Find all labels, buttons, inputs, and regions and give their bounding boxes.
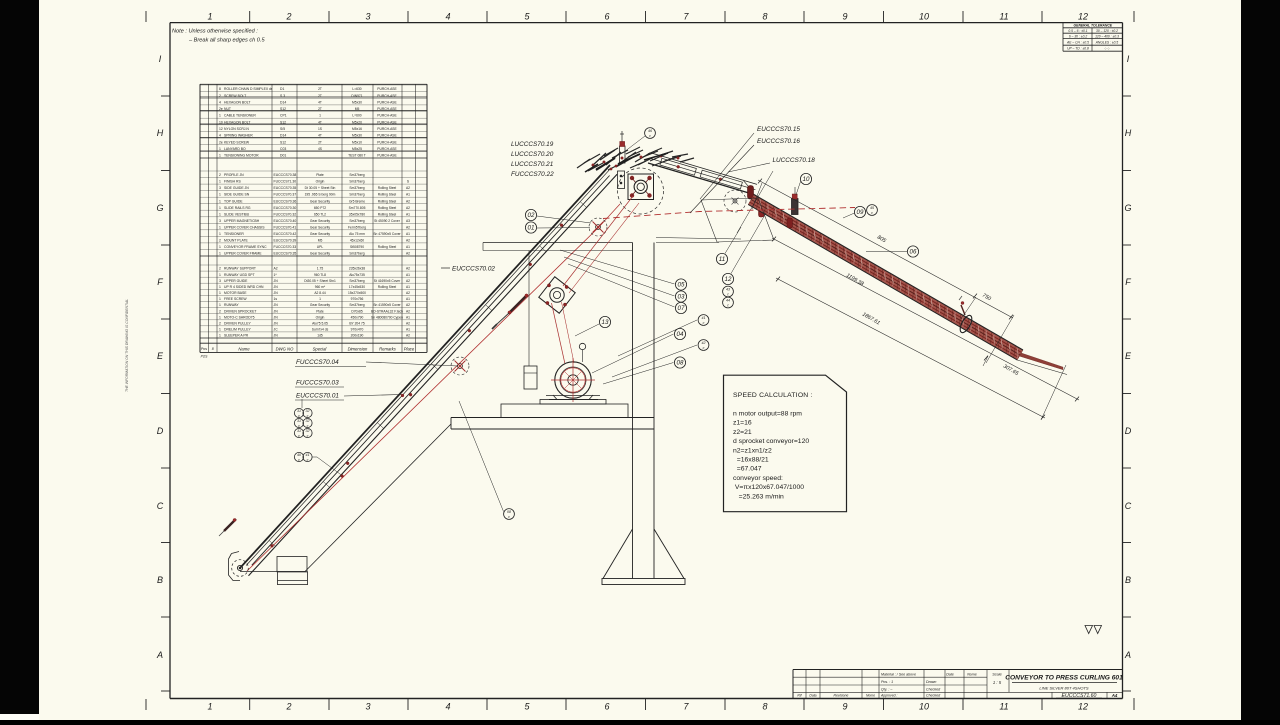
svg-text:PURCH-ASE: PURCH-ASE (377, 114, 397, 118)
svg-text:LINE SILVER 80T 4SHOTS: LINE SILVER 80T 4SHOTS (1039, 686, 1088, 691)
svg-text:Remarks: Remarks (379, 347, 397, 352)
svg-text:UPPER COVER CHASSIS: UPPER COVER CHASSIS (224, 225, 265, 229)
svg-text:z2=21: z2=21 (733, 429, 752, 436)
svg-text:DRIVEN SPROCKET: DRIVEN SPROCKET (224, 309, 256, 313)
svg-text:06: 06 (910, 249, 917, 256)
svg-text:Alu 75 mm: Alu 75 mm (349, 232, 365, 236)
svg-text:A2: A2 (406, 334, 410, 338)
svg-text:12: 12 (219, 127, 223, 131)
svg-text:41: 41 (702, 316, 706, 320)
svg-text:St 45090 2 Cover: St 45090 2 Cover (374, 219, 401, 223)
svg-text:n motor output=88 rpm: n motor output=88 rpm (733, 411, 802, 418)
svg-text:CONVEYOR TO PRESS CURLING 601: CONVEYOR TO PRESS CURLING 601 (1005, 675, 1123, 682)
svg-text:1: 1 (219, 328, 221, 332)
svg-text:A1: A1 (406, 315, 410, 319)
svg-text:Origin: Origin (316, 180, 325, 184)
svg-text:02: 02 (528, 212, 535, 219)
svg-text:3: 3 (219, 186, 221, 190)
svg-text:Sm37berg: Sm37berg (349, 303, 364, 307)
svg-text:3: 3 (219, 219, 221, 223)
svg-text:D70x85: D70x85 (351, 309, 363, 313)
svg-text:A4: A4 (1111, 693, 1118, 698)
svg-text:UP – TO : ±0.8: UP – TO : ±0.8 (1067, 47, 1089, 51)
svg-text:MOTO-C SAROD75: MOTO-C SAROD75 (224, 315, 255, 319)
svg-text:960 m*: 960 m* (315, 285, 326, 289)
svg-text:– Break all sharp edges ch 0.5: – Break all sharp edges ch 0.5 (188, 38, 265, 44)
svg-text:Plate: Plate (316, 309, 324, 313)
svg-text:c: c (298, 458, 300, 462)
svg-text:Name: Name (238, 347, 250, 352)
svg-text:Plate: Plate (316, 173, 324, 177)
svg-text:A2: A2 (406, 186, 410, 190)
svg-text:4: 4 (219, 134, 221, 138)
svg-text:1: 1 (219, 245, 221, 249)
svg-text:41: 41 (306, 453, 310, 457)
svg-text:JN: JN (274, 279, 279, 283)
svg-text:1: 1 (219, 315, 221, 319)
svg-text:A2: A2 (406, 267, 410, 271)
svg-text:45: 45 (870, 206, 874, 210)
svg-text:D01: D01 (280, 154, 286, 158)
svg-text:SLIDE VESTIBU: SLIDE VESTIBU (224, 212, 250, 216)
svg-text:D14: D14 (280, 100, 286, 104)
svg-text:ROLLER CHAIN D SIMPLEX dr: ROLLER CHAIN D SIMPLEX dr (224, 87, 273, 91)
svg-text:4: 4 (445, 12, 450, 22)
svg-text:Qty. : –: Qty. : – (881, 687, 893, 691)
svg-text:8: 8 (212, 347, 214, 351)
svg-text:AE – CH : ±0.5: AE – CH : ±0.5 (1066, 40, 1089, 44)
svg-text:2: 2 (285, 702, 291, 712)
svg-text:CONVEYOR FRAME SYNC: CONVEYOR FRAME SYNC (224, 245, 267, 249)
svg-text:A2: A2 (406, 225, 410, 229)
svg-text:1: 1 (219, 297, 221, 301)
svg-text:Approved :: Approved : (880, 694, 897, 698)
svg-text:09: 09 (857, 209, 864, 216)
svg-text:08: 08 (507, 510, 511, 514)
svg-text:MOTOR BASE: MOTOR BASE (224, 291, 247, 295)
svg-text:A2: A2 (406, 303, 410, 307)
svg-text:PURCH-ASE: PURCH-ASE (377, 140, 397, 144)
svg-text:JN: JN (274, 309, 279, 313)
svg-text:35x05x780: 35x05x780 (349, 212, 365, 216)
svg-text:CP1: CP1 (280, 114, 287, 118)
svg-text:H: H (1125, 128, 1132, 138)
svg-text:1: 1 (219, 147, 221, 151)
svg-text:1d5: 1d5 (317, 334, 323, 338)
svg-text:1: 1 (219, 114, 221, 118)
svg-text:Rolling Steel: Rolling Steel (378, 245, 397, 249)
svg-text:n2=z1xn1/z2: n2=z1xn1/z2 (733, 447, 772, 454)
svg-text:Gear Security: Gear Security (310, 199, 331, 203)
svg-text:LUCCCS70.19: LUCCCS70.19 (511, 141, 554, 148)
svg-text:A2: A2 (406, 322, 410, 326)
svg-text:c: c (307, 434, 309, 438)
svg-text:Date: Date (946, 672, 954, 676)
svg-text:E: E (1125, 351, 1132, 361)
svg-text:10: 10 (919, 12, 929, 22)
svg-text:Drawn: Drawn (926, 680, 936, 684)
svg-text:LUCCCS70.21: LUCCCS70.21 (511, 161, 554, 168)
svg-text:LANYARD BO: LANYARD BO (224, 147, 246, 151)
svg-text:M5x30: M5x30 (352, 100, 362, 104)
svg-text:DRIVEN PULLEY: DRIVEN PULLEY (224, 322, 251, 326)
svg-text:=16x88/21: =16x88/21 (733, 457, 769, 464)
svg-text:195 .965 S berg 90m: 195 .965 S berg 90m (305, 193, 336, 197)
svg-text:A2: A2 (406, 252, 410, 256)
svg-text:Nome: Nome (967, 672, 977, 676)
svg-text:A2 8.44: A2 8.44 (314, 291, 326, 295)
svg-text:c: c (307, 414, 309, 418)
svg-text:Sm770.805: Sm770.805 (349, 206, 366, 210)
svg-text:GENERAL TOLERANCE: GENERAL TOLERANCE (1074, 24, 1113, 28)
svg-text:2T: 2T (318, 87, 322, 91)
svg-text:UPPER MAGNETICBH: UPPER MAGNETICBH (224, 219, 260, 223)
svg-text:BY 204 75: BY 204 75 (349, 322, 365, 326)
svg-text:1: 1 (219, 334, 221, 338)
svg-text:FINISH RS: FINISH RS (224, 180, 242, 184)
svg-text:SPRING WASHER: SPRING WASHER (224, 134, 253, 138)
svg-text:11: 11 (719, 256, 725, 263)
svg-text:M5x16: M5x16 (352, 127, 362, 131)
svg-text:DWG NO: DWG NO (276, 347, 294, 352)
svg-text:JN: JN (274, 315, 279, 319)
svg-text:Origin: Origin (316, 315, 325, 319)
svg-text:PROFILE JN: PROFILE JN (224, 173, 244, 177)
svg-text:UPPER GUIDE: UPPER GUIDE (224, 279, 248, 283)
svg-text:c: c (727, 292, 729, 296)
svg-text:E: E (157, 351, 164, 361)
svg-text:40: 40 (297, 453, 301, 457)
svg-text:ANGLES : ±0.5: ANGLES : ±0.5 (1095, 40, 1119, 44)
svg-text:31: 31 (297, 429, 301, 433)
svg-text:15x270x500: 15x270x500 (348, 291, 366, 295)
svg-text:8: 8 (219, 87, 221, 91)
svg-text:1 : 5: 1 : 5 (993, 680, 1002, 685)
svg-text:6: 6 (604, 702, 609, 712)
svg-text:c: c (298, 414, 300, 418)
svg-text:4: 4 (219, 100, 221, 104)
svg-text:Gear Security: Gear Security (310, 219, 331, 223)
svg-text:z1=16: z1=16 (733, 420, 752, 427)
svg-text:32: 32 (306, 429, 310, 433)
svg-text:C03: C03 (280, 147, 286, 151)
svg-text:Gear Security: Gear Security (310, 303, 331, 307)
svg-text:Data: Data (809, 694, 816, 698)
svg-text:Dimension: Dimension (348, 347, 368, 352)
svg-text:Pos. : 1: Pos. : 1 (881, 680, 893, 684)
svg-text:c: c (727, 303, 729, 307)
svg-text:970x470: 970x470 (351, 328, 364, 332)
svg-text:11: 11 (999, 702, 1008, 712)
svg-text:8: 8 (762, 12, 767, 22)
svg-text:6: 6 (604, 12, 609, 22)
svg-text:2: 2 (219, 239, 221, 243)
svg-text:FUCCCS70.22: FUCCCS70.22 (511, 171, 554, 178)
svg-text:31: 31 (297, 419, 301, 423)
svg-text:FUCCCS70.32: FUCCCS70.32 (274, 212, 297, 216)
svg-text:LUCCCS70.18: LUCCCS70.18 (773, 157, 816, 164)
svg-text:RUNWAY UGD SPT: RUNWAY UGD SPT (224, 273, 255, 277)
svg-text:M5: M5 (318, 239, 323, 243)
svg-text:S12: S12 (280, 140, 286, 144)
svg-text:TEST 080 T: TEST 080 T (348, 154, 366, 158)
svg-text:31: 31 (297, 409, 301, 413)
svg-text:Revisione: Revisione (834, 694, 849, 698)
svg-text:Nome: Nome (866, 694, 875, 698)
svg-text:07: 07 (678, 305, 685, 312)
svg-text:L=630: L=630 (352, 87, 361, 91)
svg-text:HEXAGON BOLT: HEXAGON BOLT (224, 100, 251, 104)
svg-text:1: 1 (207, 12, 212, 22)
svg-text:1s: 1s (274, 297, 278, 301)
svg-text:A1: A1 (406, 285, 410, 289)
svg-text:10: 10 (803, 176, 810, 183)
svg-text:D: D (157, 426, 164, 436)
svg-text:Rolling Steel: Rolling Steel (378, 193, 397, 197)
svg-text:Sm37berg: Sm37berg (349, 219, 364, 223)
svg-text:D1: D1 (280, 87, 284, 91)
svg-text:12: 12 (1078, 12, 1088, 22)
svg-text:FUCCCS70.04: FUCCCS70.04 (296, 359, 339, 366)
svg-text:V=πx120x67.047/1000: V=πx120x67.047/1000 (733, 484, 804, 491)
svg-text:1: 1 (219, 285, 221, 289)
svg-text:Special: Special (313, 347, 328, 352)
svg-text:M5x30: M5x30 (352, 134, 362, 138)
svg-text:43: 43 (726, 288, 730, 292)
svg-text:DRELIM PULLEY: DRELIM PULLEY (224, 328, 251, 332)
svg-text:650 P72: 650 P72 (314, 206, 326, 210)
svg-text:c: c (871, 211, 873, 215)
svg-text:M5x25: M5x25 (352, 147, 362, 151)
svg-text:JN: JN (274, 303, 279, 307)
svg-text:Gr5 Breme: Gr5 Breme (349, 199, 365, 203)
svg-text:9: 9 (842, 12, 847, 22)
svg-text:45x12x60: 45x12x60 (350, 239, 364, 243)
svg-text:JN: JN (274, 322, 279, 326)
svg-text:A2: A2 (406, 291, 410, 295)
svg-text:120 – 400 : ±0.3: 120 – 400 : ±0.3 (1095, 34, 1119, 38)
svg-text:200x190: 200x190 (351, 334, 364, 338)
svg-text:Rolling Steel: Rolling Steel (378, 206, 397, 210)
svg-text:A2: A2 (406, 309, 410, 313)
svg-text:1: 1 (219, 193, 221, 197)
svg-text:970x756: 970x756 (351, 297, 364, 301)
svg-text:1.75: 1.75 (317, 267, 324, 271)
svg-text:A1: A1 (406, 328, 410, 332)
svg-text:c: c (298, 424, 300, 428)
svg-text:M5x10: M5x10 (352, 140, 362, 144)
svg-text:44: 44 (726, 299, 730, 303)
svg-text:2: 2 (219, 267, 221, 271)
svg-text:F: F (157, 277, 163, 287)
svg-text:650 TL2: 650 TL2 (314, 212, 326, 216)
svg-text:FUCCCS70.03: FUCCCS70.03 (296, 380, 339, 387)
svg-text:Alu75x735: Alu75x735 (349, 273, 365, 277)
svg-text:conveyor speed:: conveyor speed: (733, 475, 783, 482)
svg-text:13: 13 (602, 319, 609, 326)
svg-text:A1: A1 (406, 273, 410, 277)
svg-text:46: 46 (648, 129, 652, 133)
svg-text:A1: A1 (406, 245, 410, 249)
svg-text:A2: A2 (274, 267, 278, 271)
svg-text:FUCCCS70.33: FUCCCS70.33 (274, 245, 297, 249)
svg-text:PURCH-ASE: PURCH-ASE (377, 100, 397, 104)
svg-text:Gear Security: Gear Security (310, 252, 331, 256)
svg-text:Scale: Scale (992, 672, 1002, 676)
svg-text:FUCCCS71.30: FUCCCS71.30 (274, 180, 297, 184)
svg-text:Sm37berg: Sm37berg (349, 180, 364, 184)
svg-text:A1: A1 (406, 212, 410, 216)
svg-text:G: G (1124, 203, 1131, 213)
svg-text:30 – 120 : ±0.2: 30 – 120 : ±0.2 (1096, 29, 1118, 33)
svg-text:2: 2 (219, 309, 221, 313)
svg-text:0.5 – 6 : ±0.1: 0.5 – 6 : ±0.1 (1068, 29, 1087, 33)
svg-text:c: c (703, 321, 705, 325)
svg-text:10: 10 (919, 702, 929, 712)
svg-text:EUCCCS70.16: EUCCCS70.16 (757, 138, 800, 145)
svg-text:1: 1 (219, 199, 221, 203)
svg-text:03: 03 (678, 294, 685, 301)
svg-text:C: C (157, 501, 164, 511)
svg-text:KEYED SCREW: KEYED SCREW (224, 140, 250, 144)
svg-text:11: 11 (999, 12, 1008, 22)
svg-text:Gear Security: Gear Security (310, 225, 331, 229)
svg-text:Ferm57berg: Ferm57berg (348, 225, 366, 229)
svg-text:TOP GUIDE: TOP GUIDE (224, 199, 243, 203)
svg-text:1: 1 (219, 180, 221, 184)
svg-text:c: c (298, 434, 300, 438)
svg-text:d sprocket conveyor=120: d sprocket conveyor=120 (733, 438, 809, 445)
svg-text:1: 1 (219, 225, 221, 229)
svg-text:12: 12 (725, 276, 732, 283)
svg-text:2e: 2e (219, 140, 223, 144)
svg-text:Note : Unless otherwise specif: Note : Unless otherwise specified : (172, 29, 258, 35)
svg-text:Sum7x4 ds: Sum7x4 ds (312, 328, 329, 332)
svg-text:Sm37berg: Sm37berg (349, 186, 364, 190)
svg-text:H: H (157, 128, 164, 138)
svg-text:A1: A1 (406, 297, 410, 301)
svg-text:1: 1 (219, 273, 221, 277)
svg-text:1: 1 (219, 303, 221, 307)
svg-text:EUCCCS70.42: EUCCCS70.42 (274, 232, 297, 236)
svg-text:A2: A2 (406, 279, 410, 283)
svg-text:c: c (508, 515, 510, 519)
svg-text:2: 2 (285, 12, 291, 22)
svg-text:EUCCCS70.15: EUCCCS70.15 (757, 126, 800, 133)
svg-text:c: c (307, 458, 309, 462)
svg-text:Dt 30.05 + Sheet Stn: Dt 30.05 + Sheet Stn (305, 186, 336, 190)
svg-text:c: c (649, 134, 651, 138)
svg-text:1: 1 (219, 206, 221, 210)
svg-text:Sn 41590x5 Cover: Sn 41590x5 Cover (373, 303, 401, 307)
svg-text:17x45x530: 17x45x530 (349, 285, 365, 289)
svg-text:1: 1 (219, 232, 221, 236)
svg-text:JN: JN (274, 291, 279, 295)
svg-text:1: 1 (319, 297, 321, 301)
svg-text:FUCCCS70.41: FUCCCS70.41 (274, 225, 297, 229)
svg-text:EUCCCS70.40: EUCCCS70.40 (274, 219, 297, 223)
svg-text:A: A (1124, 650, 1131, 660)
svg-text:Sn 480080700 Cypen: Sn 480080700 Cypen (371, 315, 403, 319)
svg-text:=25.263 m/min: =25.263 m/min (733, 493, 784, 500)
svg-text:RUNWAY SUPPORT: RUNWAY SUPPORT (224, 267, 256, 271)
svg-text:32: 32 (306, 409, 310, 413)
svg-text:Gear Security: Gear Security (310, 232, 331, 236)
svg-text:450x790: 450x790 (351, 315, 364, 319)
svg-text:SIDE GUIDE JN: SIDE GUIDE JN (224, 186, 249, 190)
svg-text:PURCH-ASE: PURCH-ASE (377, 147, 397, 151)
svg-text:Rolling Steel: Rolling Steel (378, 186, 397, 190)
svg-text:THE INFORMATION ON THIS DRAWIN: THE INFORMATION ON THIS DRAWING IS CONFI… (125, 299, 129, 392)
svg-text:9: 9 (842, 702, 847, 712)
svg-text:Checked: Checked (926, 687, 941, 691)
svg-text:EUCCCS70.30: EUCCCS70.30 (274, 206, 297, 210)
svg-text:B: B (157, 575, 163, 585)
svg-text:A: A (156, 650, 163, 660)
svg-text:08: 08 (677, 360, 684, 367)
svg-text:01: 01 (528, 225, 535, 232)
svg-text:1: 1 (207, 702, 212, 712)
svg-text:PURCH-ASE: PURCH-ASE (377, 134, 397, 138)
svg-text:A1: A1 (406, 193, 410, 197)
svg-text:A2: A2 (406, 206, 410, 210)
svg-text:42: 42 (702, 341, 706, 345)
svg-text:A2: A2 (406, 239, 410, 243)
svg-text:4: 4 (445, 702, 450, 712)
svg-text:Sm37berg: Sm37berg (349, 252, 364, 256)
svg-text:FUCCCS70.37: FUCCCS70.37 (274, 193, 297, 197)
svg-text:EUCCCS70.36: EUCCCS70.36 (274, 199, 297, 203)
svg-text:BO-STRAAL32 F.tech: BO-STRAAL32 F.tech (371, 309, 403, 313)
svg-text:CABLE TENSIONER: CABLE TENSIONER (224, 114, 256, 118)
svg-text:Sm37berg: Sm37berg (349, 279, 364, 283)
svg-text:SLIDE RAILS RG: SLIDE RAILS RG (224, 206, 251, 210)
svg-text:Checked: Checked (926, 694, 941, 698)
svg-text:St508790: St508790 (350, 245, 364, 249)
svg-text:=67.047: =67.047 (733, 466, 762, 473)
svg-text:LUCCCS70.20: LUCCCS70.20 (511, 151, 554, 158)
svg-text:PURCH-ASE: PURCH-ASE (377, 87, 397, 91)
svg-text:Rolling Steel: Rolling Steel (378, 212, 397, 216)
svg-text:3: 3 (219, 279, 221, 283)
svg-text:1: 1 (219, 154, 221, 158)
svg-text:32: 32 (306, 419, 310, 423)
svg-text:UPL: UPL (317, 245, 324, 249)
svg-text:A3: A3 (406, 219, 410, 223)
svg-text:EUCCCS70.35: EUCCCS70.35 (274, 186, 297, 190)
svg-text:SLEEPER A PR: SLEEPER A PR (224, 334, 249, 338)
svg-text:St 41690x5 Cover: St 41690x5 Cover (374, 279, 401, 283)
svg-text:EUCCCS70.35: EUCCCS70.35 (274, 252, 297, 256)
svg-text:Pos: Pos (201, 347, 207, 351)
svg-text:12: 12 (1078, 702, 1088, 712)
svg-text:G: G (156, 203, 163, 213)
svg-text:TENSIONING MOTOR: TENSIONING MOTOR (224, 154, 259, 158)
svg-text:SIDE GUIDE SN: SIDE GUIDE SN (224, 193, 250, 197)
svg-text:NYLON SCRJ.N: NYLON SCRJ.N (224, 127, 249, 131)
svg-text:04: 04 (677, 331, 684, 338)
svg-text:05: 05 (678, 282, 685, 289)
svg-text:JN: JN (274, 334, 279, 338)
svg-text:MOUNT PLATE: MOUNT PLATE (224, 239, 249, 243)
svg-text:L=600: L=600 (352, 114, 361, 118)
svg-text:4T: 4T (318, 100, 322, 104)
svg-text:EUCCCS70.01: EUCCCS70.01 (296, 393, 339, 400)
svg-text:POS: POS (201, 355, 209, 359)
svg-text:Rolling Steel: Rolling Steel (378, 199, 397, 203)
svg-text:8: 8 (762, 702, 767, 712)
svg-text:c: c (703, 346, 705, 350)
